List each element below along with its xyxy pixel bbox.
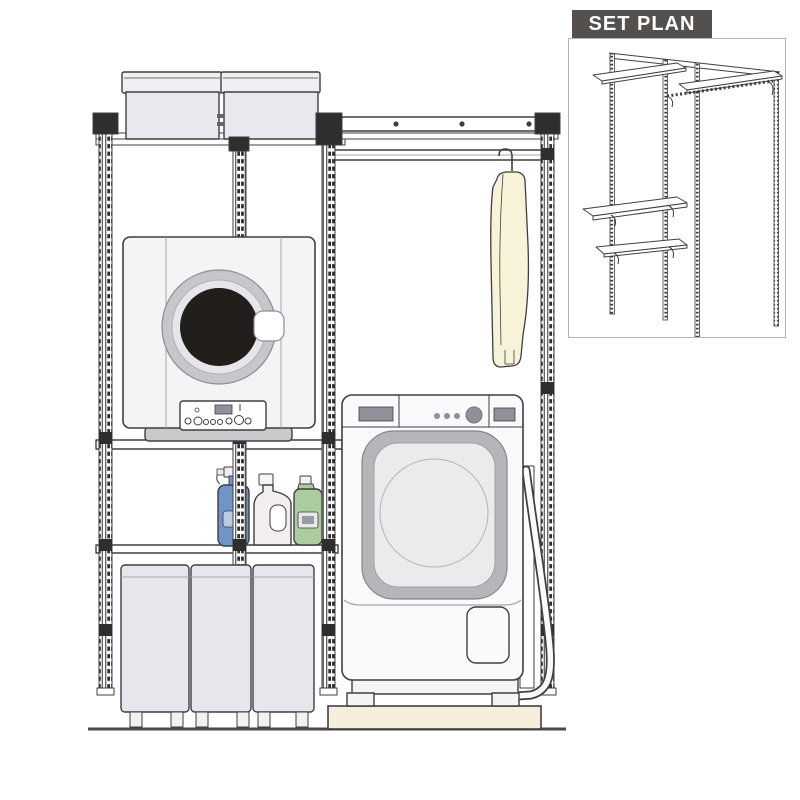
product-image: SET PLAN bbox=[0, 0, 800, 800]
dryer-button bbox=[204, 420, 209, 425]
wall-rail-center-right bbox=[322, 130, 335, 691]
screw-icon bbox=[459, 121, 464, 126]
dryer-control-panel bbox=[180, 401, 266, 430]
dryer-button bbox=[245, 418, 251, 424]
plan-top-left-shelf bbox=[593, 63, 686, 84]
washer-door bbox=[362, 431, 507, 599]
plan-bracket bbox=[669, 97, 673, 107]
washer-button bbox=[454, 413, 460, 419]
storage-boxes bbox=[122, 72, 320, 139]
shelf-bracket bbox=[99, 539, 112, 551]
washer-button bbox=[434, 413, 440, 419]
rail-top-bracket bbox=[316, 113, 342, 145]
top-beam bbox=[328, 117, 558, 131]
detergent-handle-hole bbox=[270, 505, 286, 531]
softener-label-inner bbox=[302, 516, 314, 524]
dryer-display bbox=[215, 405, 232, 414]
dryer-button bbox=[185, 418, 191, 424]
rail-top-bracket bbox=[93, 113, 118, 134]
rail-bracket bbox=[229, 137, 249, 151]
washing-machine bbox=[328, 395, 550, 729]
rail-joint bbox=[541, 382, 554, 394]
rail-top-bracket bbox=[535, 113, 560, 134]
dryer-button bbox=[235, 416, 244, 425]
storage-box-left-lid bbox=[122, 72, 222, 93]
plan-bracket bbox=[769, 82, 773, 95]
box-latch bbox=[217, 114, 224, 118]
washer-foot bbox=[347, 693, 374, 706]
detergent-bottle bbox=[254, 474, 291, 545]
screw-icon bbox=[393, 121, 398, 126]
dryer-door-handle bbox=[254, 311, 284, 341]
plan-vertical-rails bbox=[610, 54, 779, 337]
storage-cabinet-1 bbox=[121, 565, 189, 712]
dryer-button bbox=[226, 418, 232, 424]
rail-foot bbox=[320, 688, 337, 695]
clothes-dryer bbox=[123, 237, 315, 441]
hanging-garment bbox=[491, 149, 529, 367]
rod-bracket bbox=[541, 148, 554, 160]
box-latch bbox=[217, 122, 224, 126]
set-plan-drawing bbox=[569, 39, 785, 337]
plan-rail bbox=[774, 72, 779, 326]
shelf-bracket bbox=[233, 539, 246, 551]
shelf-bracket bbox=[322, 432, 335, 444]
drain-pan bbox=[328, 706, 541, 729]
washer-button bbox=[444, 413, 450, 419]
plan-top-right-shelf bbox=[667, 71, 782, 107]
plan-rail bbox=[610, 54, 615, 314]
detergent-cap bbox=[259, 474, 273, 485]
washer-door-glass bbox=[374, 443, 495, 587]
rail-foot bbox=[97, 688, 114, 695]
softener-bottle bbox=[294, 476, 322, 545]
storage-cabinet-2 bbox=[191, 565, 251, 712]
washer-detergent-drawer bbox=[359, 407, 393, 421]
dryer-drum-window bbox=[180, 288, 258, 366]
garment-body bbox=[491, 172, 529, 367]
shelf-bracket bbox=[99, 432, 112, 444]
washer-knob bbox=[466, 407, 482, 423]
storage-box-left bbox=[126, 92, 219, 139]
plan-middle-shelf bbox=[583, 197, 687, 226]
plan-rail bbox=[695, 63, 700, 337]
set-plan-title: SET PLAN bbox=[589, 13, 696, 36]
cabinet-foot bbox=[258, 712, 270, 727]
detergent-shelf bbox=[96, 545, 338, 553]
washer-foot bbox=[492, 693, 519, 706]
storage-cabinet-3 bbox=[253, 565, 314, 712]
storage-box-right-lid bbox=[221, 72, 320, 93]
washer-base bbox=[352, 679, 518, 694]
cabinet-foot bbox=[196, 712, 208, 727]
cabinet-foot bbox=[237, 712, 249, 727]
cabinet-foot bbox=[171, 712, 183, 727]
screw-icon bbox=[526, 121, 531, 126]
cabinet-foot bbox=[130, 712, 142, 727]
dryer-button bbox=[211, 420, 216, 425]
set-plan-inset bbox=[568, 38, 786, 338]
dryer-button bbox=[218, 420, 223, 425]
left-top-shelf bbox=[96, 139, 345, 145]
washer-service-door bbox=[467, 607, 509, 663]
dryer-button bbox=[194, 417, 202, 425]
shelf-bracket bbox=[322, 539, 335, 551]
rail-joint bbox=[99, 624, 112, 636]
washer-display bbox=[494, 408, 515, 421]
storage-cabinets bbox=[121, 565, 314, 727]
plan-rail bbox=[663, 60, 668, 320]
rail-joint bbox=[322, 624, 335, 636]
storage-box-right bbox=[224, 92, 318, 139]
cabinet-foot bbox=[296, 712, 308, 727]
wall-rail-left bbox=[99, 130, 112, 691]
set-plan-banner: SET PLAN bbox=[572, 10, 712, 38]
